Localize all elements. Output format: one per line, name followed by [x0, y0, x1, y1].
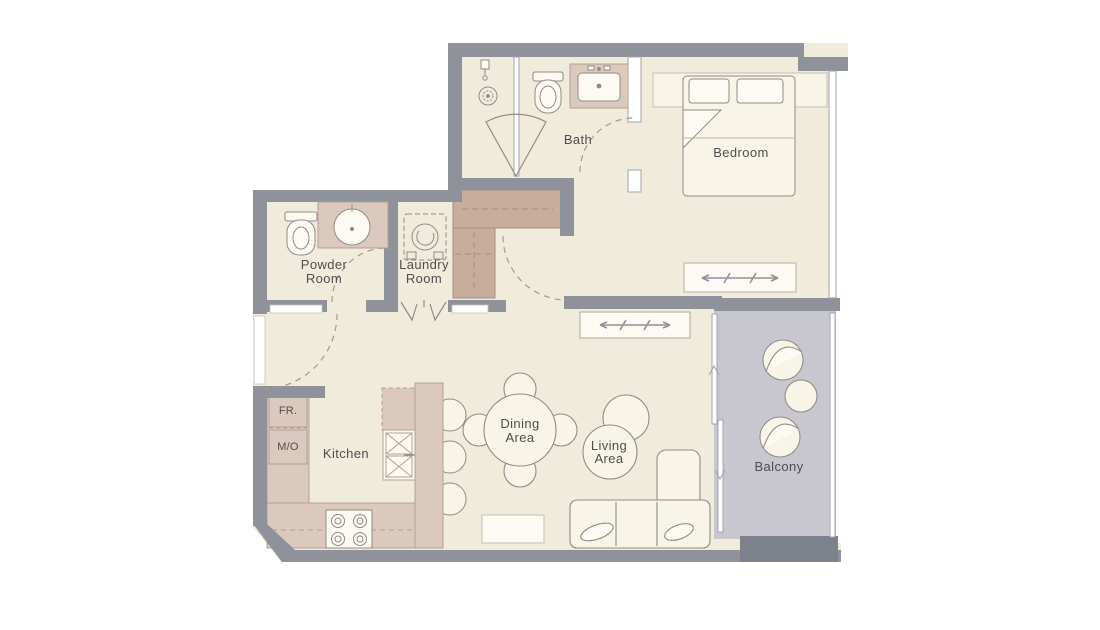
powder-vanity	[318, 202, 388, 248]
stove-icon	[326, 510, 372, 548]
balcony-table-icon	[785, 380, 817, 412]
powder-room-label: Powder	[301, 257, 348, 272]
bedroom-window	[829, 71, 836, 298]
balcony-chair-icon	[760, 417, 800, 457]
rug	[482, 515, 544, 543]
pillow-icon	[689, 79, 729, 103]
laundry-room-label: Laundry	[399, 257, 449, 272]
pillow-icon	[737, 79, 783, 103]
kitchen-label: Kitchen	[323, 446, 369, 461]
floor-plan-drawing: Bath Bedroom Powder Room Laundry Room Ki…	[0, 0, 1100, 630]
laundry-room-label: Room	[406, 271, 442, 286]
bath-vanity	[570, 64, 628, 108]
balcony-label: Balcony	[754, 459, 803, 474]
balcony-chair-icon	[763, 340, 803, 380]
balcony-rail	[830, 313, 835, 537]
powder-toilet-icon	[285, 212, 317, 255]
micro-oven-label: M/O	[277, 441, 299, 453]
fridge-label: FR.	[279, 405, 297, 417]
bath-label: Bath	[564, 132, 592, 147]
tv-console	[580, 312, 690, 338]
balcony-bottom-wall	[740, 536, 838, 562]
bath-toilet-icon	[533, 72, 563, 113]
living-area-label: Area	[594, 451, 623, 466]
island-appliance	[382, 388, 415, 430]
powder-room-label: Room	[306, 271, 342, 286]
bedroom-label: Bedroom	[713, 145, 769, 160]
dining-area-label: Dining	[500, 416, 539, 431]
bedroom-dresser	[684, 263, 796, 292]
dining-area-label: Area	[505, 430, 534, 445]
entry-threshold	[254, 316, 265, 384]
floor-plan-page: Bath Bedroom Powder Room Laundry Room Ki…	[0, 0, 1100, 630]
shower-glass-panel	[514, 57, 519, 176]
